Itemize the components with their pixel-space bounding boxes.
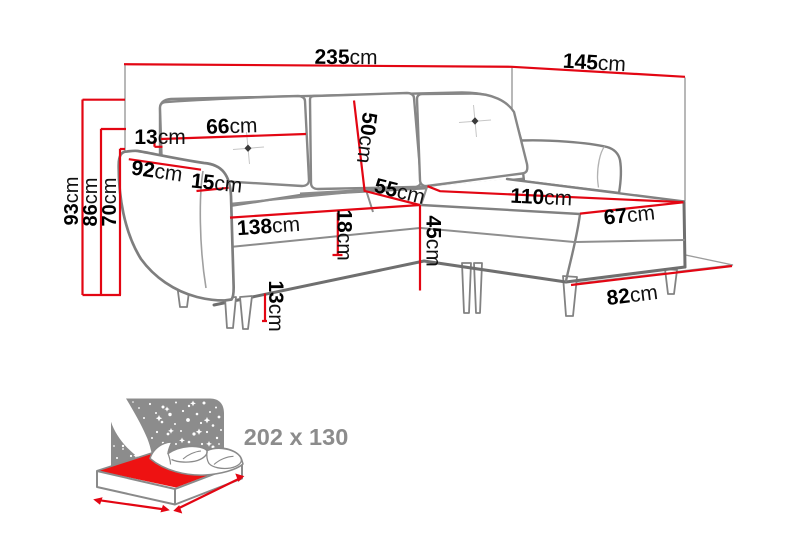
svg-text:202 x 130: 202 x 130 [244,424,349,450]
svg-text:70cm: 70cm [99,178,121,227]
svg-text:13cm: 13cm [264,280,287,331]
svg-text:145cm: 145cm [562,50,626,77]
svg-text:45cm: 45cm [422,215,445,266]
svg-text:66cm: 66cm [206,114,258,139]
svg-text:138cm: 138cm [236,213,300,240]
svg-text:110cm: 110cm [510,185,573,211]
svg-text:13cm: 13cm [134,126,185,149]
svg-text:18cm: 18cm [333,209,356,260]
svg-text:235cm: 235cm [314,46,377,70]
